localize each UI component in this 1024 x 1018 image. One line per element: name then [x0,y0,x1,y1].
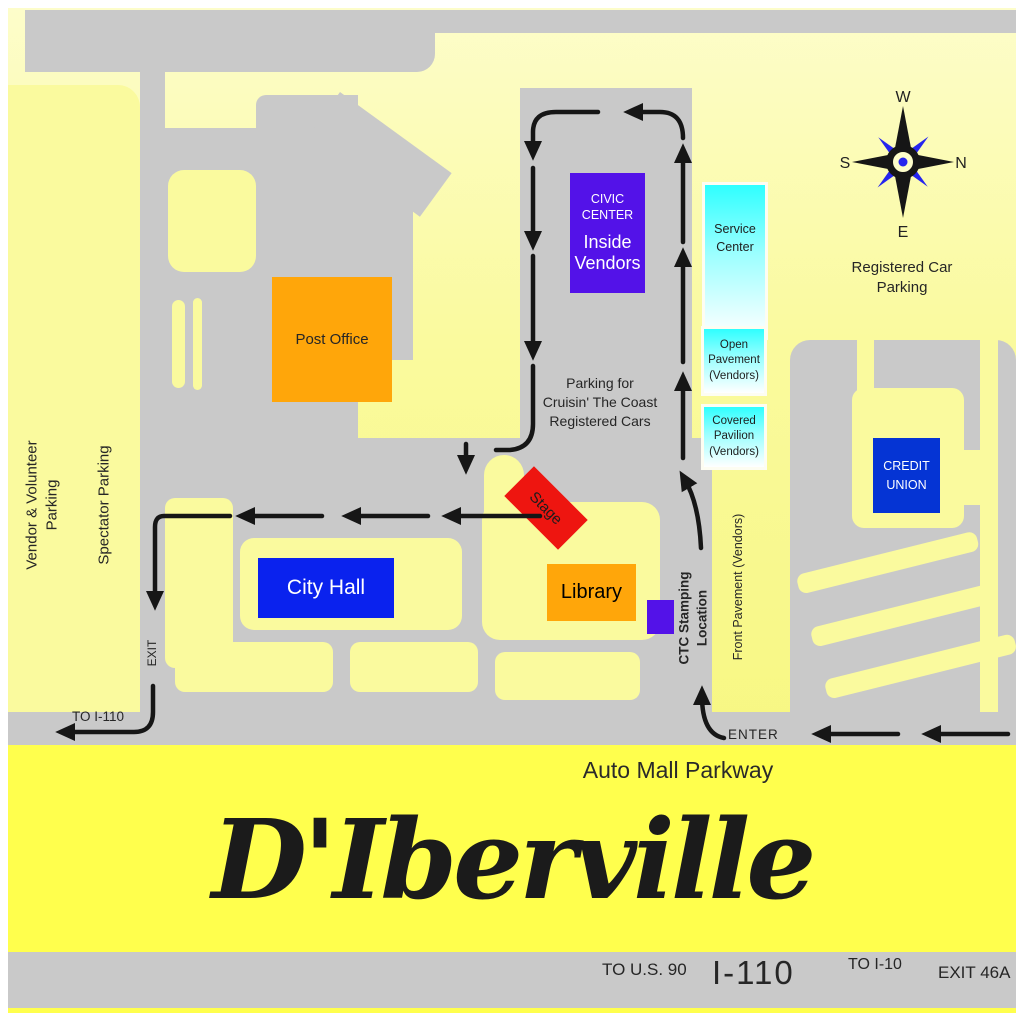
lot-sliver-1 [172,300,185,388]
compass-east-label: E [898,224,909,241]
building-city-hall: City Hall [258,558,394,618]
library-label: Library [561,581,622,604]
ctc-stamping-building [647,600,674,634]
highway-label-to-i10: TO I-10 [848,955,902,976]
lot-post-office-island [168,170,256,272]
highway-label-to-us90: TO U.S. 90 [602,959,687,981]
city-name: D'Iberville [8,788,1016,931]
route-label-exit: EXIT [145,640,161,667]
building-civic-center: CIVIC CENTER Inside Vendors [570,173,645,293]
building-library: Library [547,564,636,621]
highway-label-exit-46a: EXIT 46A [938,962,1010,984]
road-bottom-auto-mall [8,712,1016,745]
vendor-area-covered-pavilion: Covered Pavilion (Vendors) [701,404,767,470]
building-credit-union: CREDIT UNION [873,438,940,513]
compass-south-label: S [840,155,851,172]
credit-union-label-line1: CREDIT [883,457,930,475]
route-label-to-i110: TO I-110 [72,708,124,726]
road-left-exit [140,30,165,745]
compass-west-label: W [895,89,911,106]
road-top-wide-section [25,10,435,72]
inside-vendors-label-line2: Vendors [574,253,640,274]
compass-center-dot [899,158,908,167]
lot-label-vendor-volunteer: Vendor & Volunteer Parking [23,440,62,569]
open-pavement-label-line3: (Vendors) [709,369,759,385]
service-center-label-line2: Center [716,239,754,257]
lot-label-registered-cars-central: Parking for Cruisin' The Coast Registere… [518,374,682,431]
lot-label-spectator: Spectator Parking [94,445,114,564]
building-service-center: Service Center [702,182,768,340]
building-post-office: Post Office [272,277,392,402]
lot-sliver-2 [193,298,202,390]
civic-center-label-line1: CIVIC [591,192,624,208]
lot-credit-union-east-conn [938,450,984,505]
lot-island-south-1 [175,642,333,692]
civic-center-label-line2: CENTER [582,208,633,224]
diberville-event-map: Post Office CIVIC CENTER Inside Vendors … [0,0,1024,1018]
inside-vendors-label-line1: Inside [583,232,631,253]
open-pavement-label-line1: Open [720,338,748,354]
route-label-ctc-stamping: CTC Stamping Location [675,572,710,665]
credit-union-label-line2: UNION [886,476,926,494]
compass-north-label: N [955,155,967,172]
bottom-yellow-strip [8,1008,1016,1013]
compass-rose: W E S N [838,90,968,240]
route-label-enter: ENTER [728,726,779,744]
covered-pavilion-label-line3: (Vendors) [709,445,759,461]
road-credit-union-north [857,340,874,394]
route-label-front-pavement: Front Pavement (Vendors) [730,514,746,661]
covered-pavilion-label-line1: Covered [712,414,755,430]
service-center-label-line1: Service [714,221,756,239]
road-label-auto-mall-parkway: Auto Mall Parkway [518,756,838,786]
highway-label-i110: I-110 [712,952,795,995]
open-pavement-label-line2: Pavement [708,353,760,369]
lot-island-south-3 [495,652,640,700]
lot-island-south-2 [350,642,478,692]
stage-label: Stage [526,488,566,528]
covered-pavilion-label-line2: Pavilion [714,429,754,445]
vendor-area-open-pavement: Open Pavement (Vendors) [701,326,767,396]
lot-west-parking [8,85,140,712]
city-hall-label: City Hall [287,576,365,600]
lot-label-registered-car-parking: Registered Car Parking [828,258,976,297]
post-office-label: Post Office [295,330,368,350]
